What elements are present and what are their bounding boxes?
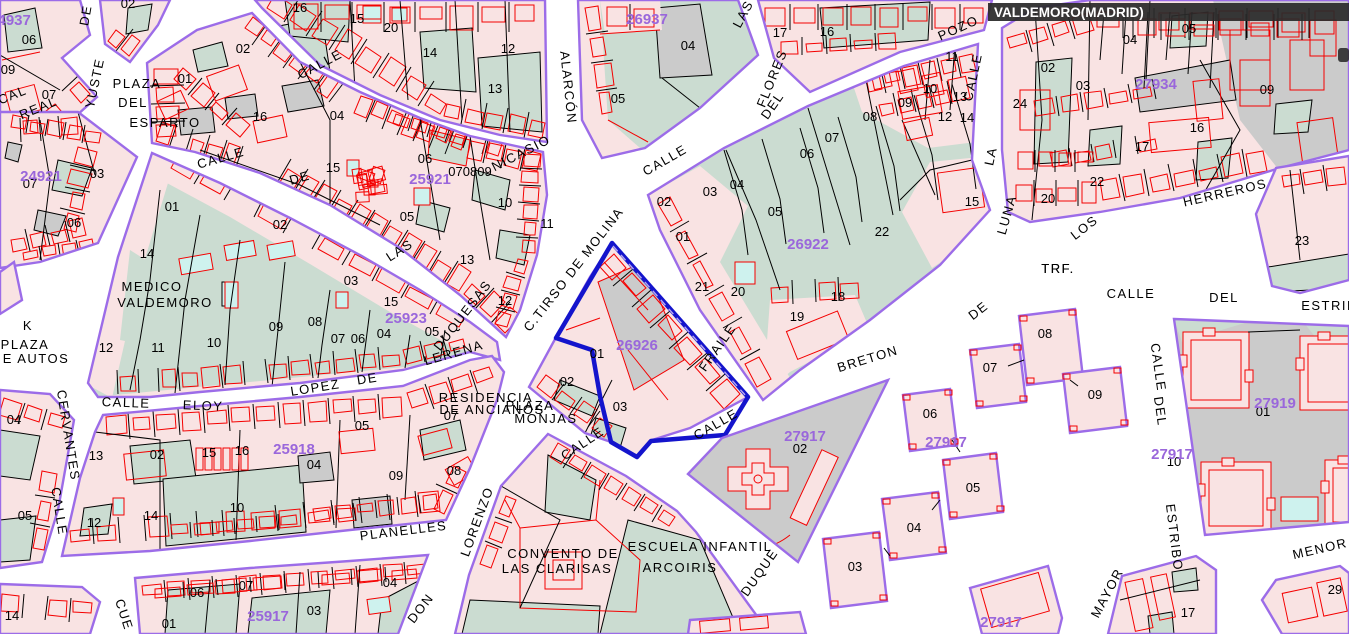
- svg-text:05: 05: [400, 209, 414, 224]
- svg-text:08: 08: [308, 314, 322, 329]
- svg-text:04: 04: [730, 177, 744, 192]
- svg-text:070809: 070809: [448, 164, 491, 179]
- svg-text:27934: 27934: [1135, 76, 1177, 93]
- svg-text:07: 07: [444, 408, 458, 423]
- svg-text:06: 06: [351, 331, 365, 346]
- svg-text:14: 14: [144, 508, 158, 523]
- svg-text:07: 07: [239, 578, 253, 593]
- svg-text:01: 01: [165, 199, 179, 214]
- svg-text:15: 15: [350, 11, 364, 26]
- svg-text:20: 20: [1041, 191, 1055, 206]
- svg-text:24921: 24921: [20, 168, 62, 185]
- svg-text:27919: 27919: [1254, 395, 1296, 412]
- svg-text:03: 03: [613, 399, 627, 414]
- svg-text:E AUTOS: E AUTOS: [3, 351, 70, 366]
- svg-text:CONVENTO DE: CONVENTO DE: [507, 546, 619, 561]
- svg-text:14: 14: [140, 246, 154, 261]
- svg-text:05: 05: [611, 91, 625, 106]
- svg-text:05: 05: [768, 204, 782, 219]
- svg-text:12: 12: [99, 340, 113, 355]
- svg-text:15: 15: [326, 160, 340, 175]
- svg-text:ESPARTO: ESPARTO: [129, 115, 200, 130]
- svg-text:25917: 25917: [247, 608, 289, 625]
- svg-text:ESTRIBO: ESTRIBO: [1301, 298, 1349, 313]
- svg-text:CALLE: CALLE: [1107, 286, 1156, 301]
- svg-text:16: 16: [820, 24, 834, 39]
- svg-text:04: 04: [1123, 32, 1137, 47]
- svg-text:10: 10: [230, 500, 244, 515]
- svg-text:27917: 27917: [1151, 446, 1193, 463]
- svg-text:15: 15: [384, 294, 398, 309]
- svg-text:22: 22: [875, 224, 889, 239]
- svg-text:VALDEMORO: VALDEMORO: [117, 295, 213, 310]
- svg-text:12: 12: [87, 515, 101, 530]
- svg-text:PLAZA: PLAZA: [113, 76, 162, 91]
- svg-text:04: 04: [383, 575, 397, 590]
- svg-text:15: 15: [202, 445, 216, 460]
- svg-text:12: 12: [501, 41, 515, 56]
- svg-text:MEDICO: MEDICO: [122, 279, 183, 294]
- svg-text:11: 11: [151, 340, 165, 355]
- svg-text:09: 09: [1, 62, 15, 77]
- svg-text:10: 10: [923, 81, 937, 96]
- svg-text:25923: 25923: [385, 310, 427, 327]
- svg-text:02: 02: [273, 217, 287, 232]
- svg-text:20: 20: [731, 284, 745, 299]
- svg-text:16: 16: [235, 443, 249, 458]
- svg-text:04: 04: [681, 38, 695, 53]
- svg-text:09: 09: [1088, 387, 1102, 402]
- svg-text:26926: 26926: [616, 337, 658, 354]
- svg-text:06: 06: [67, 215, 81, 230]
- svg-text:14: 14: [5, 608, 19, 623]
- svg-text:03: 03: [848, 559, 862, 574]
- svg-text:17: 17: [773, 25, 787, 40]
- svg-text:02: 02: [657, 194, 671, 209]
- svg-text:DEL: DEL: [118, 95, 148, 110]
- svg-text:02: 02: [560, 374, 574, 389]
- svg-text:16: 16: [253, 109, 267, 124]
- svg-text:17: 17: [1135, 139, 1149, 154]
- svg-text:K: K: [23, 318, 33, 333]
- svg-text:06: 06: [22, 32, 36, 47]
- svg-text:06: 06: [923, 406, 937, 421]
- svg-text:11: 11: [945, 49, 959, 64]
- svg-text:09: 09: [1260, 82, 1274, 97]
- svg-text:02: 02: [1041, 60, 1055, 75]
- svg-text:15: 15: [965, 194, 979, 209]
- svg-text:07: 07: [983, 360, 997, 375]
- svg-text:02: 02: [121, 0, 135, 11]
- svg-text:24937: 24937: [0, 12, 31, 29]
- svg-text:03: 03: [307, 603, 321, 618]
- svg-text:27917: 27917: [925, 434, 967, 451]
- svg-text:06: 06: [418, 151, 432, 166]
- svg-text:04: 04: [907, 520, 921, 535]
- svg-text:05: 05: [966, 480, 980, 495]
- svg-text:20: 20: [384, 20, 398, 35]
- svg-text:13: 13: [89, 448, 103, 463]
- svg-text:27917: 27917: [784, 428, 826, 445]
- svg-text:07: 07: [42, 87, 56, 102]
- svg-text:09: 09: [898, 95, 912, 110]
- svg-text:04: 04: [307, 457, 321, 472]
- svg-text:09: 09: [269, 319, 283, 334]
- svg-text:04: 04: [377, 326, 391, 341]
- svg-text:04: 04: [330, 108, 344, 123]
- svg-text:16: 16: [293, 0, 307, 15]
- svg-text:27917: 27917: [980, 614, 1022, 631]
- svg-text:05: 05: [425, 324, 439, 339]
- svg-text:11: 11: [540, 216, 554, 231]
- svg-text:05: 05: [1182, 21, 1196, 36]
- svg-text:03: 03: [90, 166, 104, 181]
- svg-text:13: 13: [488, 81, 502, 96]
- svg-text:18: 18: [831, 289, 845, 304]
- svg-text:06: 06: [800, 146, 814, 161]
- svg-text:03: 03: [703, 184, 717, 199]
- svg-text:01: 01: [162, 616, 176, 631]
- svg-text:26937: 26937: [626, 11, 668, 28]
- svg-text:09: 09: [389, 468, 403, 483]
- svg-text:13: 13: [460, 252, 474, 267]
- svg-text:07: 07: [331, 331, 345, 346]
- svg-text:02: 02: [150, 447, 164, 462]
- svg-text:21: 21: [695, 279, 709, 294]
- svg-text:26922: 26922: [787, 236, 829, 253]
- svg-text:05: 05: [355, 418, 369, 433]
- svg-text:07: 07: [825, 130, 839, 145]
- svg-text:10: 10: [498, 195, 512, 210]
- svg-text:DEL: DEL: [1209, 290, 1239, 305]
- svg-text:VALDEMORO(MADRID): VALDEMORO(MADRID): [994, 5, 1144, 20]
- svg-text:01: 01: [590, 346, 604, 361]
- svg-text:08: 08: [863, 109, 877, 124]
- svg-text:03: 03: [344, 273, 358, 288]
- svg-text:MONJAS: MONJAS: [514, 411, 577, 426]
- svg-text:17: 17: [1181, 605, 1195, 620]
- svg-text:10: 10: [207, 335, 221, 350]
- svg-text:23: 23: [1295, 233, 1309, 248]
- svg-text:25921: 25921: [409, 171, 451, 188]
- svg-text:02: 02: [236, 41, 250, 56]
- svg-text:PLAZA: PLAZA: [1, 337, 50, 352]
- svg-text:CALLE: CALLE: [102, 394, 151, 411]
- svg-text:19: 19: [790, 309, 804, 324]
- svg-text:14: 14: [423, 45, 437, 60]
- svg-text:01: 01: [178, 71, 192, 86]
- svg-text:TRF.: TRF.: [1041, 261, 1074, 276]
- svg-text:08: 08: [1038, 326, 1052, 341]
- svg-text:LAS CLARISAS: LAS CLARISAS: [502, 561, 613, 576]
- svg-text:22: 22: [1090, 174, 1104, 189]
- svg-text:08: 08: [447, 463, 461, 478]
- svg-text:16: 16: [1190, 120, 1204, 135]
- svg-text:25918: 25918: [273, 441, 315, 458]
- svg-text:14: 14: [960, 110, 974, 125]
- svg-text:03: 03: [1076, 78, 1090, 93]
- svg-text:29: 29: [1328, 582, 1342, 597]
- svg-text:05: 05: [18, 508, 32, 523]
- svg-text:12: 12: [498, 293, 512, 308]
- svg-text:ELOY: ELOY: [183, 397, 224, 413]
- svg-text:04: 04: [7, 412, 21, 427]
- svg-text:13: 13: [953, 89, 967, 104]
- svg-text:12: 12: [938, 109, 952, 124]
- svg-text:24: 24: [1013, 96, 1027, 111]
- svg-text:01: 01: [676, 229, 690, 244]
- svg-text:ARCOIRIS: ARCOIRIS: [643, 560, 718, 575]
- svg-text:06: 06: [190, 585, 204, 600]
- svg-text:ESCUELA INFANTIL: ESCUELA INFANTIL: [628, 539, 773, 554]
